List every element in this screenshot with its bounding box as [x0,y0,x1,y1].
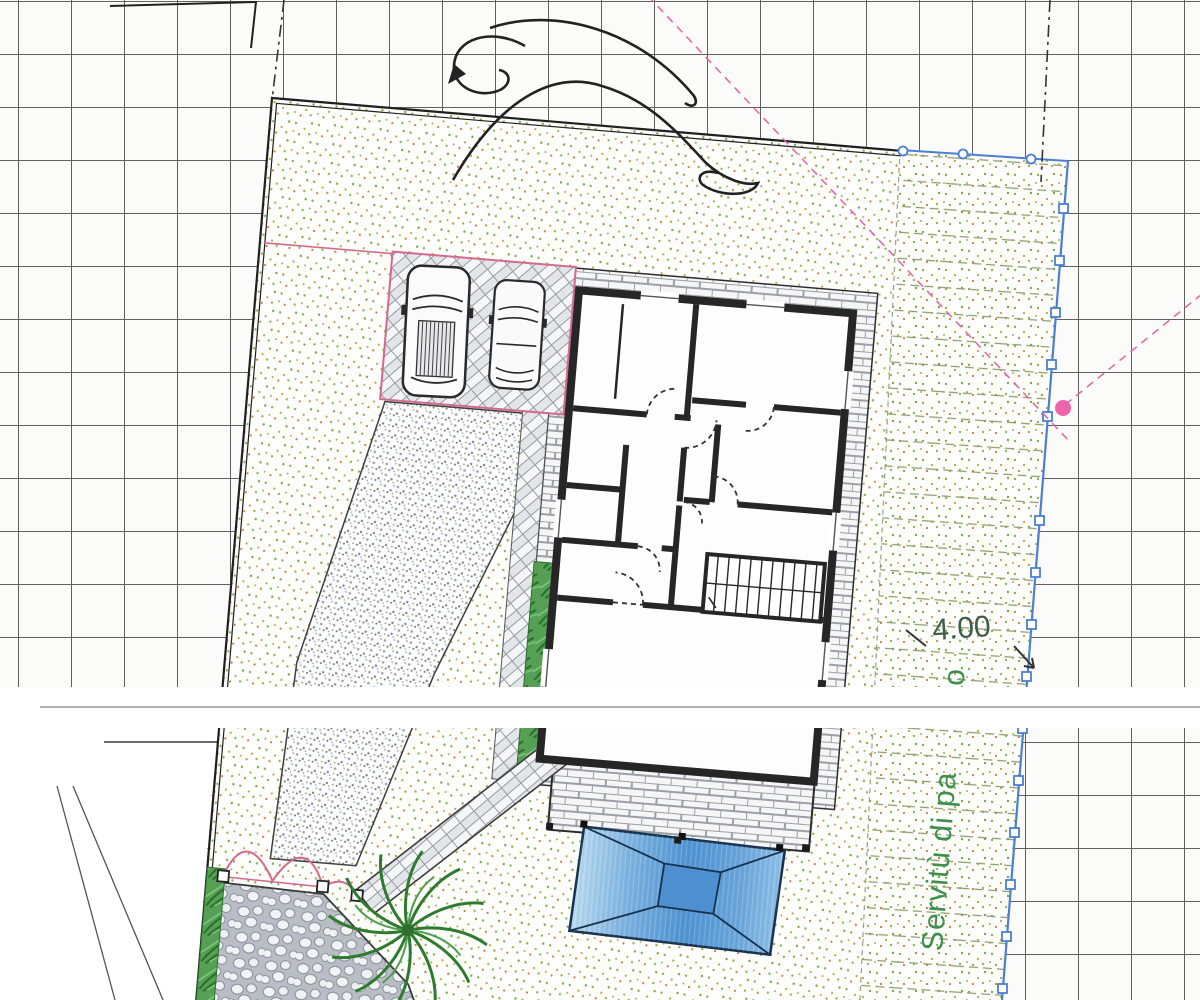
site-plan-drawing: 4.00 Servitù di pa o [0,0,1200,1000]
adjacent-building-outline [110,2,256,48]
page-edge-line [40,706,1200,708]
scan-seam [0,687,1200,728]
plot [192,98,970,1000]
survey-point [1055,400,1071,416]
staircase [703,554,825,622]
gate-post [317,881,329,893]
gate-post [217,870,229,882]
dimension-label: 4.00 [931,610,992,647]
servitude-label-tail: o [937,668,971,687]
car-small [484,279,549,391]
car-large [397,265,475,398]
